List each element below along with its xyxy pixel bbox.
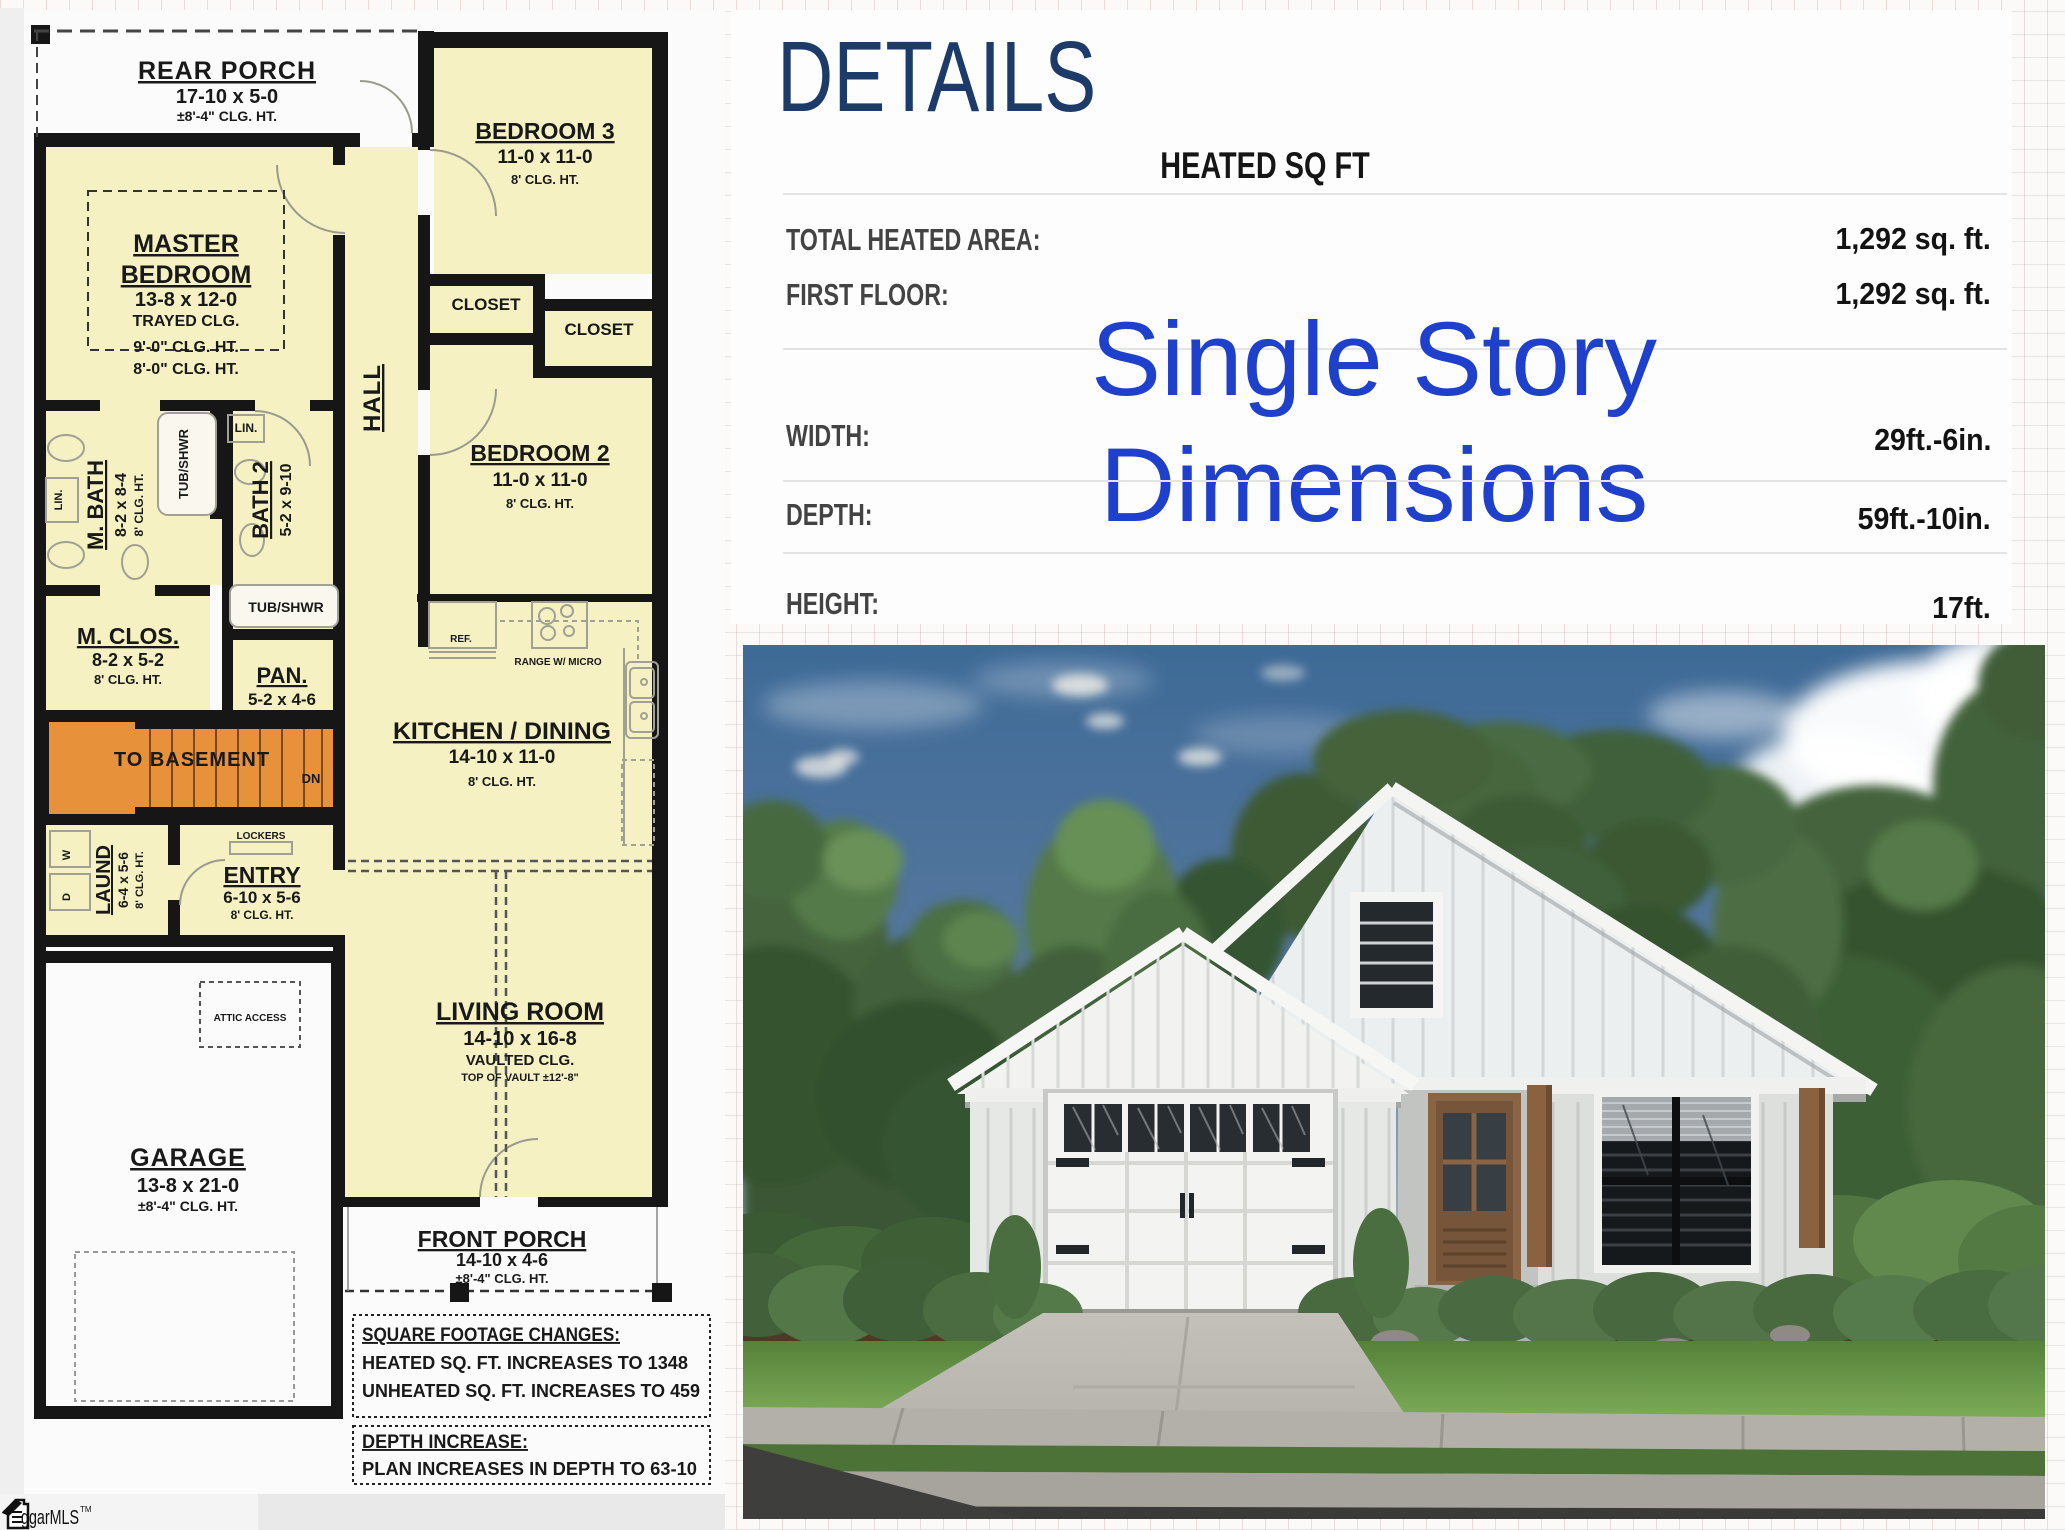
svg-text:LOCKERS: LOCKERS [237, 831, 286, 842]
svg-text:HEATED SQ. FT. INCREASES TO 13: HEATED SQ. FT. INCREASES TO 1348 [362, 1353, 688, 1373]
svg-text:TUB/SHWR: TUB/SHWR [248, 599, 323, 615]
svg-text:BATH 2: BATH 2 [248, 461, 273, 539]
svg-text:LIVING ROOM: LIVING ROOM [436, 998, 604, 1026]
svg-text:8-2 x 8-4: 8-2 x 8-4 [113, 473, 130, 537]
svg-text:SQUARE FOOTAGE CHANGES:: SQUARE FOOTAGE CHANGES: [362, 1325, 620, 1346]
svg-text:GARAGE: GARAGE [130, 1144, 246, 1172]
svg-text:BEDROOM 3: BEDROOM 3 [475, 118, 614, 144]
svg-text:8' CLG. HT.: 8' CLG. HT. [134, 851, 146, 909]
svg-text:TUB/SHWR: TUB/SHWR [176, 428, 191, 499]
svg-text:14-10 x 16-8: 14-10 x 16-8 [463, 1028, 576, 1050]
svg-text:D: D [61, 893, 73, 901]
svg-text:8' CLG. HT.: 8' CLG. HT. [506, 496, 574, 511]
svg-text:KITCHEN / DINING: KITCHEN / DINING [393, 718, 611, 745]
svg-text:ggarMLS: ggarMLS [21, 1507, 79, 1529]
svg-text:6-10 x 5-6: 6-10 x 5-6 [223, 888, 301, 907]
svg-text:DN: DN [302, 771, 321, 786]
svg-text:8' CLG. HT.: 8' CLG. HT. [231, 908, 294, 922]
svg-text:PLAN INCREASES IN DEPTH TO 63-: PLAN INCREASES IN DEPTH TO 63-10 [362, 1459, 697, 1479]
svg-text:11-0 x 11-0: 11-0 x 11-0 [492, 470, 587, 491]
svg-text:REF.: REF. [450, 634, 472, 645]
svg-text:RANGE W/ MICRO: RANGE W/ MICRO [514, 657, 601, 668]
svg-text:±8'-4" CLG. HT.: ±8'-4" CLG. HT. [456, 1271, 549, 1286]
svg-text:M. CLOS.: M. CLOS. [77, 623, 179, 649]
svg-text:PAN.: PAN. [257, 663, 308, 688]
svg-text:LAUND: LAUND [93, 845, 115, 915]
svg-text:DEPTH INCREASE:: DEPTH INCREASE: [362, 1432, 528, 1453]
svg-text:CLOSET: CLOSET [565, 320, 635, 339]
svg-text:±8'-4" CLG. HT.: ±8'-4" CLG. HT. [177, 108, 277, 124]
svg-text:TM: TM [80, 1505, 92, 1514]
svg-text:9'-0" CLG. HT.: 9'-0" CLG. HT. [133, 339, 239, 356]
svg-text:UNHEATED SQ. FT. INCREASES TO: UNHEATED SQ. FT. INCREASES TO 459 [362, 1381, 700, 1401]
svg-text:±8'-4" CLG. HT.: ±8'-4" CLG. HT. [138, 1198, 238, 1214]
svg-text:BEDROOM: BEDROOM [121, 261, 252, 289]
svg-text:13-8 x 12-0: 13-8 x 12-0 [135, 289, 237, 311]
svg-text:REAR PORCH: REAR PORCH [138, 57, 316, 85]
svg-text:FRONT PORCH: FRONT PORCH [418, 1226, 587, 1252]
svg-text:CLOSET: CLOSET [452, 295, 522, 314]
svg-text:14-10 x 4-6: 14-10 x 4-6 [456, 1250, 548, 1270]
svg-text:6-4 x 5-6: 6-4 x 5-6 [115, 852, 131, 908]
svg-text:M. BATH: M. BATH [83, 460, 108, 550]
svg-text:W: W [61, 849, 73, 860]
svg-text:BEDROOM 2: BEDROOM 2 [470, 440, 609, 466]
svg-text:TO BASEMENT: TO BASEMENT [114, 749, 270, 771]
svg-text:8' CLG. HT.: 8' CLG. HT. [468, 774, 536, 789]
svg-text:TOP OF VAULT ±12'-8": TOP OF VAULT ±12'-8" [461, 1072, 579, 1084]
svg-text:VAULTED CLG.: VAULTED CLG. [466, 1052, 575, 1069]
svg-text:17-10 x 5-0: 17-10 x 5-0 [176, 86, 278, 108]
svg-text:8'-0" CLG. HT.: 8'-0" CLG. HT. [133, 361, 239, 378]
svg-text:13-8 x 21-0: 13-8 x 21-0 [137, 1175, 239, 1197]
svg-text:8' CLG. HT.: 8' CLG. HT. [511, 172, 579, 187]
svg-text:HALL: HALL [359, 364, 386, 432]
svg-text:LIN.: LIN. [53, 490, 65, 511]
svg-text:LIN.: LIN. [235, 421, 258, 435]
svg-text:5-2 x 9-10: 5-2 x 9-10 [278, 463, 295, 536]
svg-text:TRAYED CLG.: TRAYED CLG. [133, 313, 240, 330]
svg-text:ENTRY: ENTRY [223, 862, 300, 888]
svg-text:11-0 x 11-0: 11-0 x 11-0 [497, 147, 592, 168]
svg-text:5-2 x 4-6: 5-2 x 4-6 [248, 690, 316, 709]
svg-text:MASTER: MASTER [133, 230, 239, 258]
svg-text:8' CLG. HT.: 8' CLG. HT. [132, 474, 146, 537]
svg-text:ATTIC ACCESS: ATTIC ACCESS [214, 1013, 287, 1024]
svg-text:8' CLG. HT.: 8' CLG. HT. [94, 672, 162, 687]
svg-text:14-10 x 11-0: 14-10 x 11-0 [449, 747, 556, 768]
svg-text:8-2 x 5-2: 8-2 x 5-2 [92, 650, 164, 670]
